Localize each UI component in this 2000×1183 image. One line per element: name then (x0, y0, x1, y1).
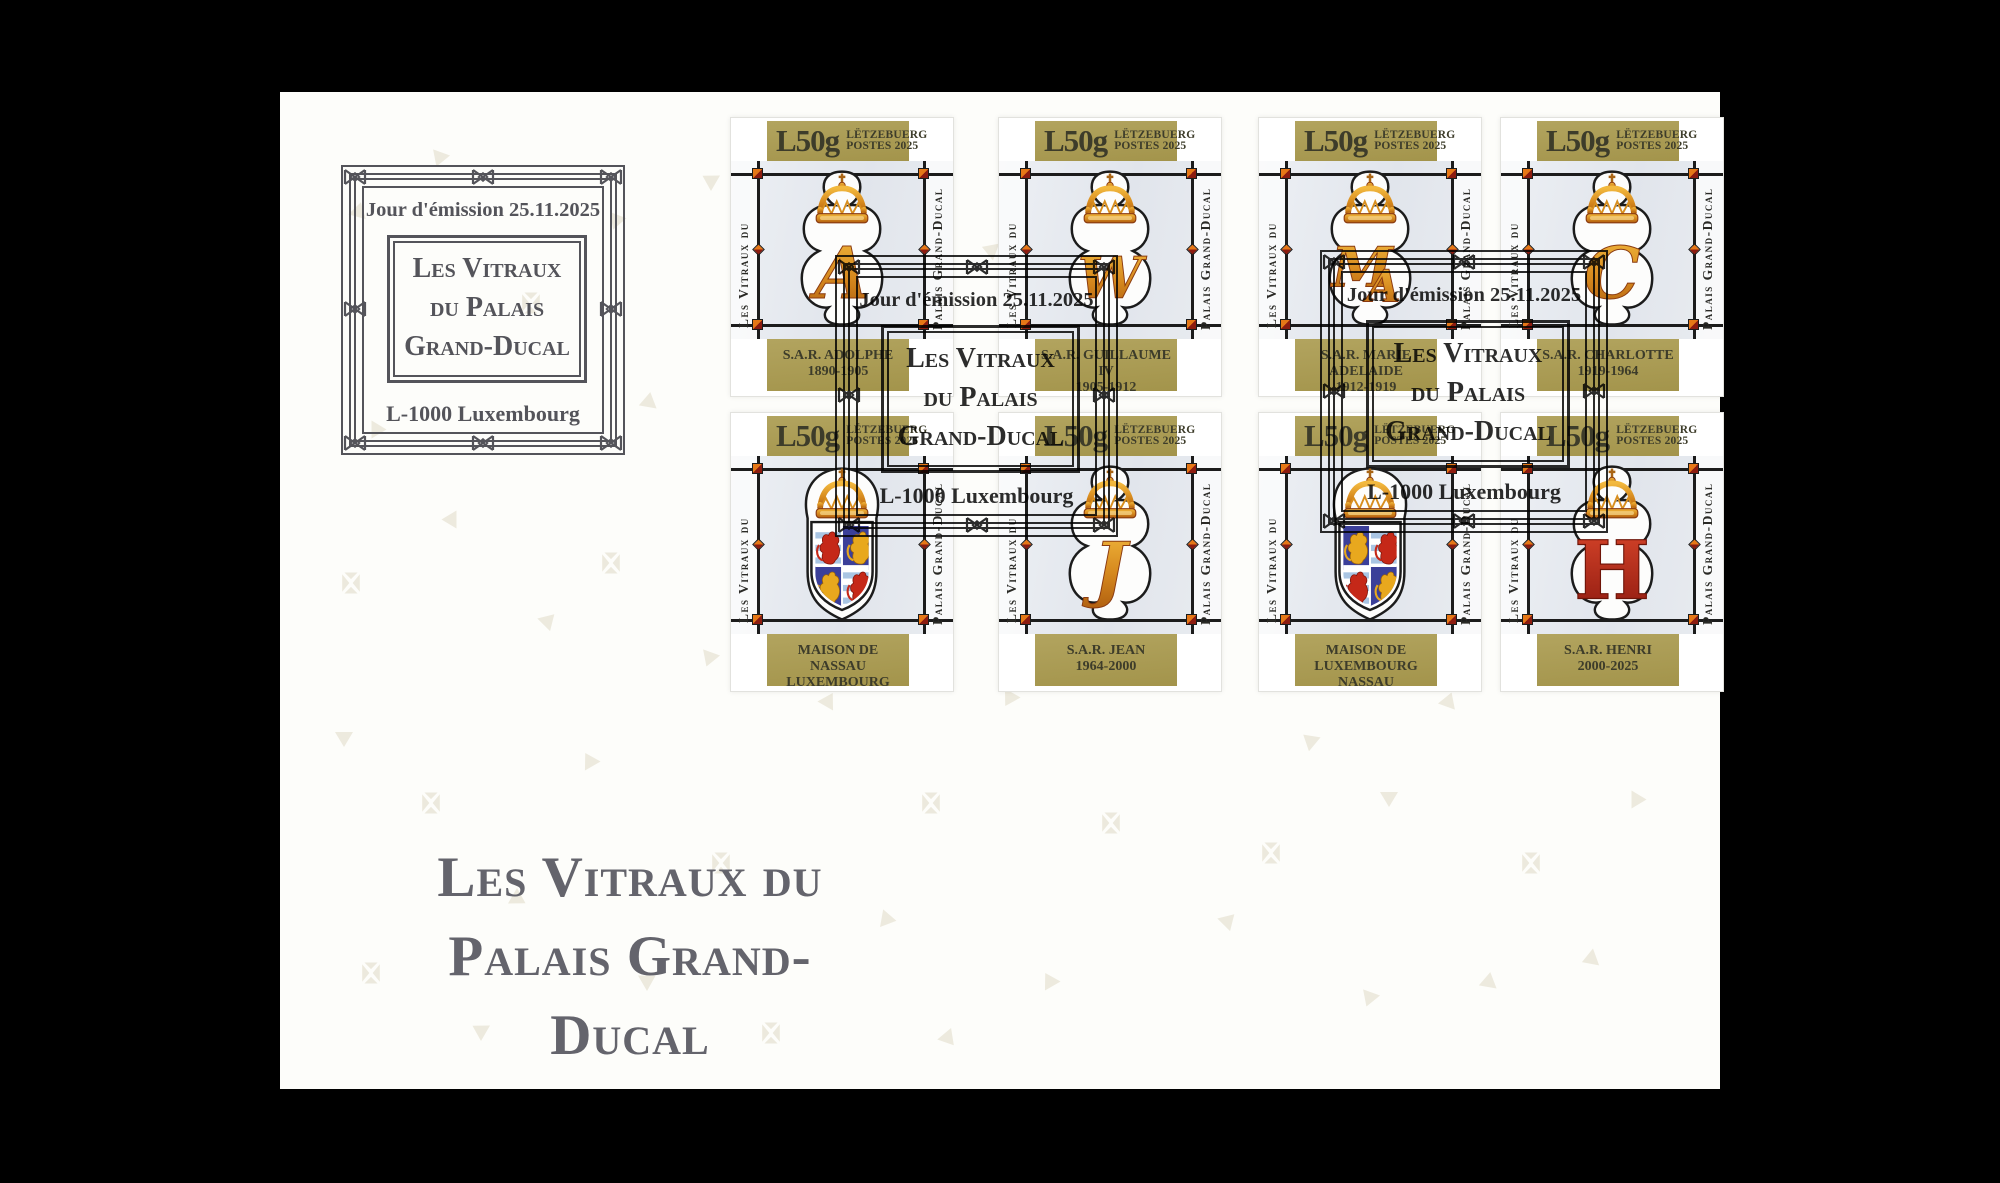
country-name: LËTZEBUERG (846, 129, 927, 141)
frame-ornament (342, 299, 368, 319)
bowtie-ornament (598, 299, 624, 319)
glass-accent (752, 168, 763, 179)
frame-ornament (1581, 511, 1607, 531)
glass-accent (1186, 319, 1197, 330)
glass-accent (1688, 319, 1699, 330)
stamp-series-left: Les Vitraux du (736, 176, 752, 328)
issue-year: POSTES 2025 (1616, 435, 1688, 447)
cachet-title-line1: Les Vitraux (1369, 334, 1567, 373)
subject-name: MAISON DE (1295, 643, 1437, 659)
cachet-title-box: Les Vitraux du Palais Grand-Ducal (387, 235, 587, 383)
frame-ornament (470, 167, 496, 187)
issue-year: POSTES 2025 (846, 140, 918, 152)
background-ornament (600, 552, 622, 579)
glass-accent (1186, 614, 1197, 625)
scanned-first-day-cover: A L50g LËTZEBUERG POSTES 2025 Les Vitrau… (0, 0, 2000, 1183)
background-ornament (1260, 842, 1282, 869)
frame-ornament (1581, 381, 1607, 401)
frame-ornament (1321, 381, 1347, 401)
bowtie-ornament (1581, 381, 1607, 401)
bowtie-ornament (598, 167, 624, 187)
glass-accent (918, 614, 929, 625)
bowtie-ornament (470, 167, 496, 187)
glass-accent (1446, 168, 1457, 179)
glass-accent (918, 168, 929, 179)
background-ornament (1358, 989, 1380, 1009)
pinwheel-ornament (1520, 852, 1542, 874)
cachet-title-line1: Les Vitraux (390, 249, 584, 288)
cachet-title-box: Les Vitraux du Palais Grand-Ducal (1366, 320, 1570, 468)
background-ornament (1479, 971, 1499, 989)
frame-ornament (1091, 515, 1117, 535)
country-name: LËTZEBUERG (1114, 129, 1195, 141)
subject-dates: LUXEMBOURG NASSAU (1295, 659, 1437, 691)
stamp-series-right: Palais Grand-Ducal (1700, 465, 1716, 625)
issue-year: POSTES 2025 (1616, 140, 1688, 152)
bowtie-ornament (964, 515, 990, 535)
issue-date-line: Jour d'émission 25.11.2025 (835, 289, 1118, 312)
bowtie-ornament (1581, 511, 1607, 531)
postmark-right: Jour d'émission 25.11.2025 Les Vitraux d… (1320, 250, 1608, 533)
bowtie-ornament (1451, 511, 1477, 531)
background-ornament (1438, 689, 1460, 709)
denomination: L50g (1304, 126, 1367, 156)
denomination: L50g (1044, 126, 1107, 156)
stamp-series-left: Les Vitraux du (1264, 471, 1280, 623)
frame-ornament (598, 433, 624, 453)
cachet-title-box: Les Vitraux du Palais Grand-Ducal (881, 325, 1080, 473)
background-ornament (937, 1028, 960, 1051)
denomination: L50g (776, 126, 839, 156)
frame-ornament (1091, 385, 1117, 405)
frame-ornament (836, 385, 862, 405)
glass-accent (1186, 168, 1197, 179)
glass-accent (1688, 168, 1699, 179)
glass-accent (752, 614, 763, 625)
subject-dates: 2000-2025 (1537, 659, 1679, 675)
background-ornament (1632, 791, 1647, 809)
stamp-name-band: MAISON DE LUXEMBOURG NASSAU (1295, 634, 1437, 686)
glass-accent (1280, 614, 1291, 625)
subject-name: S.A.R. HENRI (1537, 643, 1679, 659)
glass-accent (1280, 168, 1291, 179)
glass-accent (752, 463, 763, 474)
stamp-value-band: L50g LËTZEBUERG POSTES 2025 (1537, 121, 1679, 161)
background-ornament (1380, 792, 1398, 807)
subject-dates: 1964-2000 (1035, 659, 1177, 675)
background-ornament (340, 572, 362, 599)
pinwheel-ornament (920, 792, 942, 814)
background-ornament (577, 749, 600, 771)
glass-accent (1186, 463, 1197, 474)
background-ornament (1217, 908, 1240, 931)
frame-ornament (342, 433, 368, 453)
frame-ornament (598, 299, 624, 319)
background-ornament (1037, 969, 1060, 991)
bowtie-ornament (964, 257, 990, 277)
bowtie-ornament (598, 433, 624, 453)
bowtie-ornament (470, 433, 496, 453)
bowtie-ornament (342, 299, 368, 319)
background-ornament (920, 792, 942, 819)
frame-ornament (1321, 252, 1347, 272)
issue-year: POSTES 2025 (1374, 140, 1446, 152)
cachet-title-line3: Grand-Ducal (390, 327, 584, 366)
frame-ornament (342, 167, 368, 187)
country-name: LËTZEBUERG (1616, 424, 1697, 436)
postmark-left: Jour d'émission 25.11.2025 Les Vitraux d… (835, 255, 1118, 537)
background-ornament (335, 732, 353, 747)
bowtie-ornament (1451, 252, 1477, 272)
stamp-series-right: Palais Grand-Ducal (1198, 170, 1214, 330)
glass-accent (1020, 168, 1031, 179)
stamp-value-band: L50g LËTZEBUERG POSTES 2025 (1035, 121, 1177, 161)
pinwheel-ornament (600, 552, 622, 574)
frame-ornament (1321, 511, 1347, 531)
cachet-title-line2: du Palais (390, 288, 584, 327)
stamp-name-band: S.A.R. JEAN 1964-2000 (1035, 634, 1177, 686)
bowtie-ornament (342, 433, 368, 453)
pinwheel-ornament (360, 962, 382, 984)
issue-year: POSTES 2025 (1114, 435, 1186, 447)
pinwheel-ornament (340, 572, 362, 594)
glass-accent (1280, 463, 1291, 474)
cover-title: Les Vitraux du Palais Grand-Ducal (380, 838, 880, 1075)
stamp-series-left: Les Vitraux du (1264, 176, 1280, 328)
bowtie-ornament (1581, 252, 1607, 272)
background-ornament (698, 649, 720, 669)
cachet-city-line: L-1000 Luxembourg (1320, 479, 1608, 505)
bowtie-ornament (1091, 385, 1117, 405)
bowtie-ornament (1091, 515, 1117, 535)
frame-ornament (836, 257, 862, 277)
background-ornament (880, 909, 898, 929)
background-ornament (537, 608, 560, 631)
frame-ornament (1451, 252, 1477, 272)
background-ornament (360, 962, 382, 989)
issue-date-line: Jour d'émission 25.11.2025 (341, 199, 625, 222)
stamp-value-band: L50g LËTZEBUERG POSTES 2025 (767, 121, 909, 161)
background-ornament (1579, 948, 1599, 970)
country-name: LËTZEBUERG (1374, 129, 1455, 141)
pinwheel-ornament (1100, 812, 1122, 834)
country-name: LËTZEBUERG (1616, 129, 1697, 141)
bowtie-ornament (836, 385, 862, 405)
stamp-name-band: S.A.R. HENRI 2000-2025 (1537, 634, 1679, 686)
subject-name: S.A.R. JEAN (1035, 643, 1177, 659)
frame-ornament (964, 257, 990, 277)
denomination: L50g (776, 421, 839, 451)
glass-accent (1280, 319, 1291, 330)
cover-title-line1: Les Vitraux du (380, 838, 880, 917)
cachet-title-line1: Les Vitraux (884, 339, 1077, 378)
glass-accent (1522, 614, 1533, 625)
stamp-series-right: Palais Grand-Ducal (1700, 170, 1716, 330)
bowtie-ornament (1091, 257, 1117, 277)
bowtie-ornament (836, 515, 862, 535)
glass-accent (1688, 463, 1699, 474)
subject-dates: NASSAU LUXEMBOURG (767, 659, 909, 691)
cachet-city-line: L-1000 Luxembourg (341, 401, 625, 427)
cachet-title-line2: du Palais (884, 378, 1077, 417)
frame-ornament (836, 515, 862, 535)
glass-accent (1688, 614, 1699, 625)
subject-name: MAISON DE (767, 643, 909, 659)
pinwheel-ornament (420, 792, 442, 814)
cachet-title-line3: Grand-Ducal (884, 417, 1077, 456)
cover-title-line2: Palais Grand-Ducal (380, 917, 880, 1075)
glass-accent (1020, 614, 1031, 625)
frame-ornament (470, 433, 496, 453)
bowtie-ornament (1321, 511, 1347, 531)
royal-monogram: H (1574, 524, 1650, 618)
envelope: A L50g LËTZEBUERG POSTES 2025 Les Vitrau… (280, 92, 1720, 1089)
pinwheel-ornament (1260, 842, 1282, 864)
glass-accent (1522, 168, 1533, 179)
background-ornament (698, 168, 720, 191)
country-name: LËTZEBUERG (1114, 424, 1195, 436)
denomination: L50g (1546, 126, 1609, 156)
background-ornament (1100, 812, 1122, 839)
issue-date-line: Jour d'émission 25.11.2025 (1320, 284, 1608, 307)
background-ornament (639, 391, 659, 409)
frame-ornament (1091, 257, 1117, 277)
frame-ornament (964, 515, 990, 535)
bowtie-ornament (1321, 252, 1347, 272)
background-ornament (442, 511, 457, 529)
frame-ornament (1581, 252, 1607, 272)
cachet-title-line2: du Palais (1369, 373, 1567, 412)
stamp-series-left: Les Vitraux du (736, 471, 752, 623)
cachet-city-line: L-1000 Luxembourg (835, 483, 1118, 509)
stamp-value-band: L50g LËTZEBUERG POSTES 2025 (1295, 121, 1437, 161)
stamp-name-band: MAISON DE NASSAU LUXEMBOURG (767, 634, 909, 686)
issue-year: POSTES 2025 (1114, 140, 1186, 152)
bowtie-ornament (836, 257, 862, 277)
background-ornament (1520, 852, 1542, 879)
first-day-cachet: Jour d'émission 25.11.2025 Les Vitraux d… (341, 165, 625, 455)
frame-ornament (598, 167, 624, 187)
glass-accent (752, 319, 763, 330)
background-ornament (420, 792, 442, 819)
glass-accent (1446, 614, 1457, 625)
bowtie-ornament (342, 167, 368, 187)
stamp-series-right: Palais Grand-Ducal (1198, 465, 1214, 625)
frame-ornament (1451, 511, 1477, 531)
background-ornament (1297, 728, 1320, 751)
cachet-title-line3: Grand-Ducal (1369, 412, 1567, 451)
coat-of-arms (1339, 522, 1400, 610)
bowtie-ornament (1321, 381, 1347, 401)
